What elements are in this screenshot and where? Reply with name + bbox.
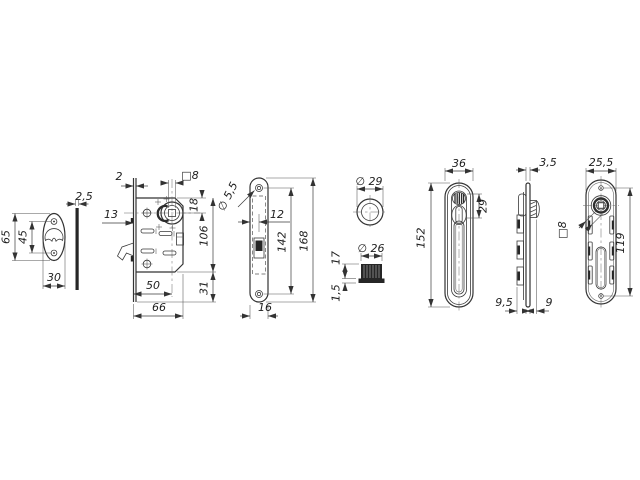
- dim-case-width: 66: [152, 301, 166, 314]
- rose-top-view: ∅ 29: [353, 175, 387, 229]
- dim-bushing-lip: 1,5: [330, 284, 343, 302]
- dim-bushing-height: 17: [330, 251, 343, 265]
- dim-spindle-square: □8: [181, 169, 198, 182]
- thumbturn-crescent: [45, 229, 63, 242]
- dim-plate-thickness: 3,5: [539, 156, 557, 169]
- handle-back-view: 25,5 119 □8: [556, 156, 633, 308]
- dim-esc-hole-spacing: 45: [17, 230, 30, 244]
- dim-esc-height: 65: [0, 230, 13, 244]
- dim-clip-offset: 9,5: [495, 296, 513, 309]
- snap-clips: [517, 215, 524, 285]
- escutcheon-side-view: 2,5: [66, 190, 93, 290]
- dim-handle-width: 36: [452, 157, 466, 170]
- lock-body-view: 2 13 □8 18 106 31 50 66: [102, 169, 216, 319]
- escutcheon-front-view: 65 45 30: [0, 214, 65, 290]
- dim-faceplate-hole: ∅ 5,5: [215, 180, 240, 213]
- dim-back-hole-spacing: 119: [614, 233, 627, 254]
- dim-back-square: □8: [556, 221, 569, 238]
- dim-spindle-offset: 18: [188, 198, 201, 212]
- dim-handle-length: 152: [415, 228, 428, 249]
- dim-bushing-diameter: ∅ 26: [357, 242, 384, 255]
- dim-latch-throw: 13: [104, 208, 118, 221]
- dim-case-height: 106: [198, 226, 211, 247]
- dim-plate-overhang: 31: [198, 281, 211, 295]
- dim-body-plate-thickness: 2: [116, 170, 123, 183]
- dim-backset: 50: [146, 279, 160, 292]
- dim-esc-width: 30: [47, 271, 61, 284]
- handle-front-view: 36 29 152: [415, 157, 490, 311]
- handle-side-view: 3,5 9,5 9: [495, 156, 557, 314]
- dim-faceplate-offset: 12: [270, 208, 284, 221]
- dim-faceplate-width: 16: [258, 301, 272, 314]
- dim-knob-offset: 9: [546, 296, 553, 309]
- technical-drawing-page: 65 45 30 2,5: [0, 0, 640, 480]
- mechanism-slots: [141, 229, 184, 256]
- bushing-side-view: ∅ 26 17 1,5: [330, 242, 385, 302]
- dim-back-width: 25,5: [589, 156, 614, 169]
- lock-drawing-canvas: 65 45 30 2,5: [0, 0, 640, 480]
- dim-faceplate-hole-spacing: 142: [276, 232, 289, 253]
- dim-rose-diameter: ∅ 29: [355, 175, 382, 188]
- dim-esc-thickness: 2,5: [75, 190, 93, 203]
- dim-turn-height: 29: [477, 199, 490, 213]
- dim-faceplate-length: 168: [298, 231, 311, 252]
- faceplate-front-view: ∅ 5,5 12 142 168 16: [215, 178, 316, 319]
